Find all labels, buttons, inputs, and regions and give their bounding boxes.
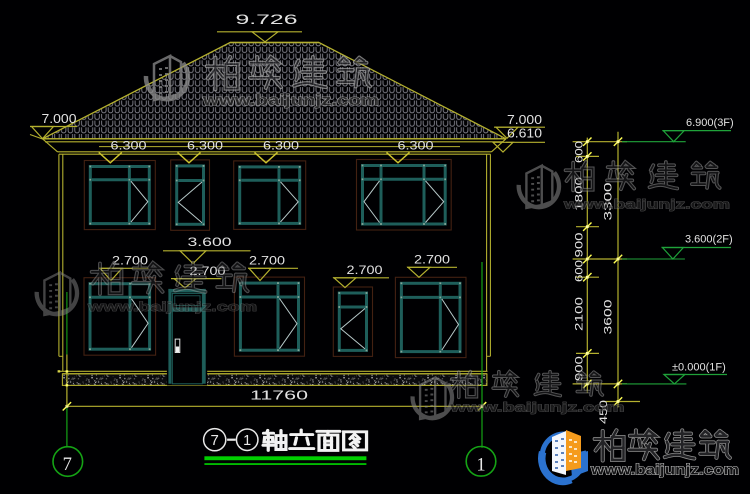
- svg-text:6.900(3F): 6.900(3F): [686, 117, 734, 129]
- svg-text:2.700: 2.700: [249, 254, 285, 268]
- svg-text:6.610: 6.610: [507, 126, 542, 141]
- svg-text:www.baijunjz.com: www.baijunjz.com: [202, 93, 379, 109]
- svg-text:www.baijunjz.com: www.baijunjz.com: [590, 463, 739, 479]
- svg-text:www.baijunjz.com: www.baijunjz.com: [449, 400, 625, 415]
- svg-text:600: 600: [574, 260, 586, 282]
- svg-text:3.600(2F): 3.600(2F): [685, 234, 733, 246]
- svg-text:600: 600: [574, 141, 586, 163]
- svg-text:3.600: 3.600: [188, 235, 232, 249]
- svg-text:2.700: 2.700: [347, 263, 383, 277]
- svg-text:www.baijunjz.com: www.baijunjz.com: [563, 197, 730, 212]
- svg-text:2100: 2100: [574, 297, 586, 331]
- svg-text:1: 1: [243, 433, 251, 449]
- svg-text:2.700: 2.700: [414, 253, 450, 267]
- svg-text:6.300: 6.300: [398, 139, 434, 153]
- svg-text:2.700: 2.700: [112, 254, 148, 268]
- svg-text:6.300: 6.300: [111, 139, 147, 153]
- svg-text:900: 900: [574, 233, 586, 258]
- svg-text:11760: 11760: [250, 388, 308, 403]
- svg-text:1: 1: [476, 456, 485, 476]
- svg-text:3600: 3600: [603, 300, 615, 335]
- svg-text:6.300: 6.300: [263, 139, 299, 153]
- svg-text:7: 7: [63, 455, 72, 475]
- svg-text:www.baijunjz.com: www.baijunjz.com: [86, 299, 257, 314]
- svg-text:7: 7: [211, 432, 219, 449]
- svg-text:6.300: 6.300: [187, 139, 223, 153]
- svg-text:9.726: 9.726: [236, 12, 298, 27]
- svg-text:7.000: 7.000: [42, 111, 77, 126]
- svg-text:±0.000(1F): ±0.000(1F): [672, 362, 726, 374]
